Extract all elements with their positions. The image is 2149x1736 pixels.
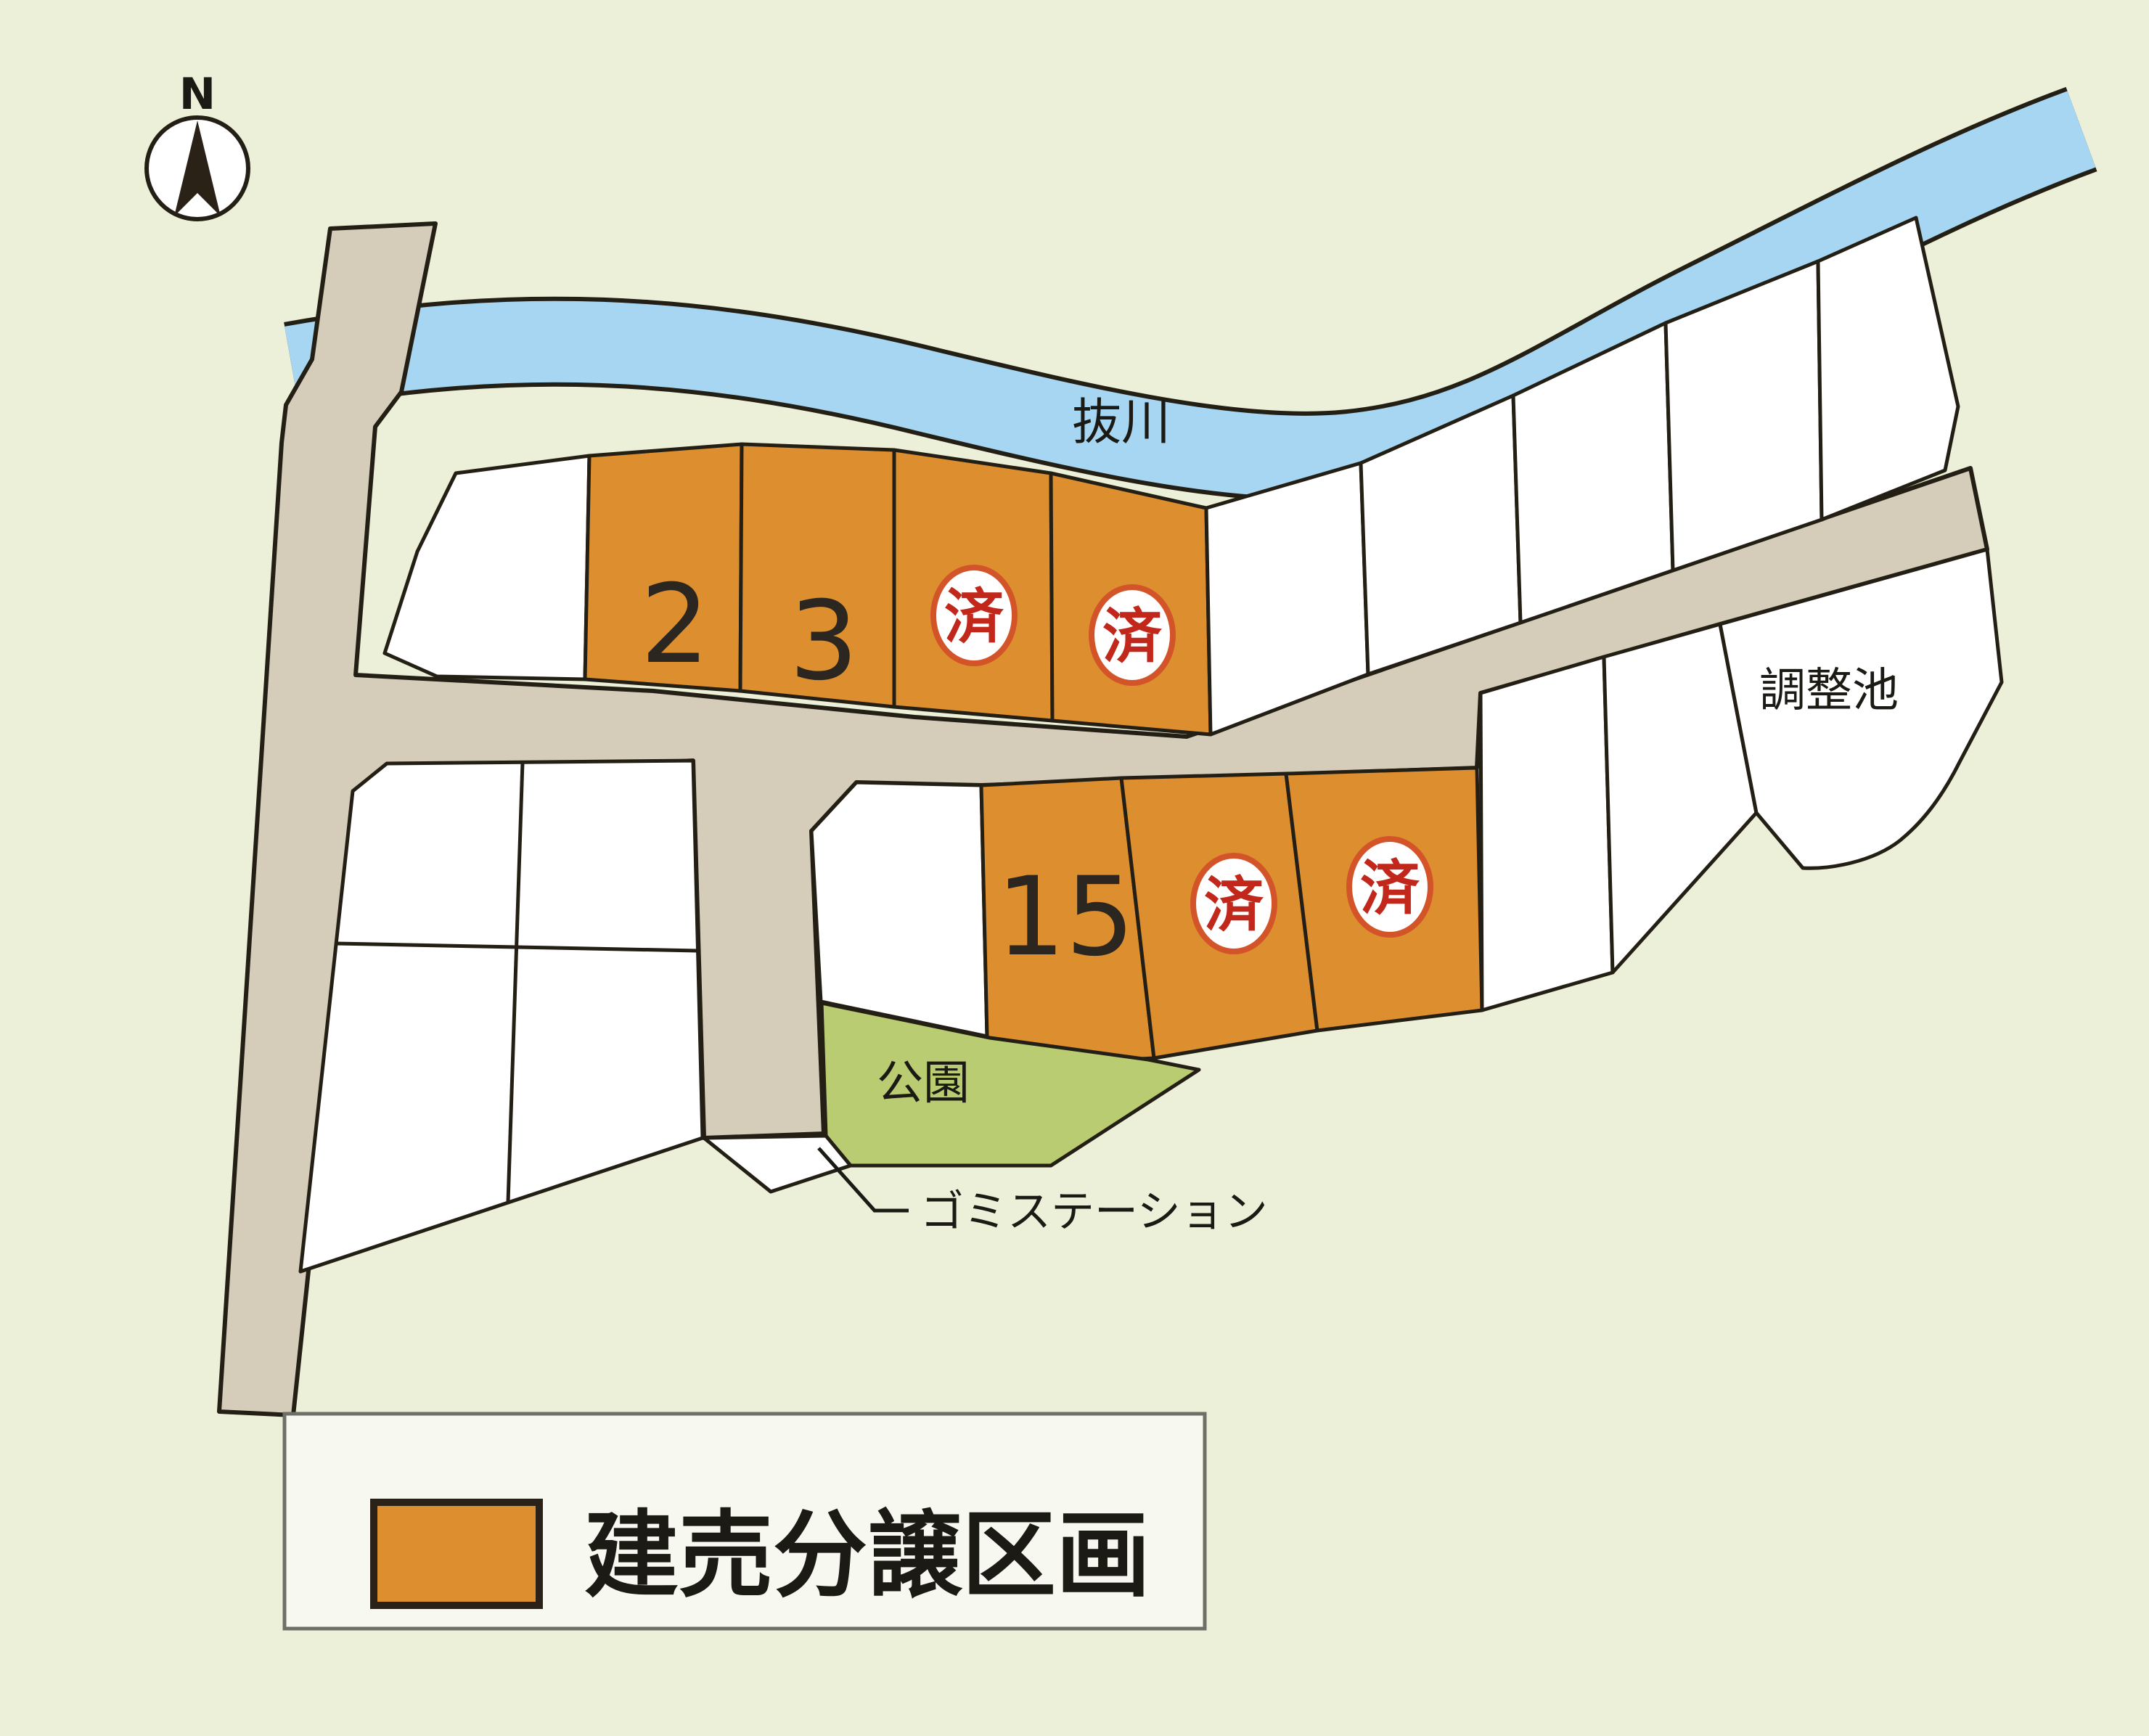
sold-stamp: 済	[1092, 587, 1173, 683]
legend-swatch	[374, 1502, 539, 1605]
sold-stamp: 済	[933, 568, 1015, 663]
sold-stamp-text: 済	[1360, 854, 1420, 923]
white-lot	[811, 782, 987, 1036]
legend: 建売分譲区画	[285, 1414, 1205, 1629]
legend-label: 建売分譲区画	[584, 1500, 1150, 1610]
site-plan-map: ゴミステーション 2 3 15 済 済 済 済 抜川 調整池 公園 N 建売分譲…	[0, 0, 2149, 1736]
lot-2-number: 2	[640, 562, 709, 688]
white-lot	[1481, 657, 1613, 1010]
lot-3-number: 3	[789, 578, 858, 705]
garbage-station-label: ゴミステーション	[920, 1187, 1268, 1237]
sold-stamp-text: 済	[1204, 871, 1264, 940]
sold-stamp-text: 済	[1102, 602, 1163, 671]
lot-15-number: 15	[996, 854, 1135, 980]
sold-stamp: 済	[1349, 839, 1430, 935]
sold-stamp-text: 済	[944, 583, 1004, 652]
park-label: 公園	[877, 1057, 970, 1110]
compass-n-label: N	[179, 69, 216, 120]
river-label: 抜川	[1072, 394, 1171, 451]
sold-stamp: 済	[1193, 856, 1274, 951]
pond-label: 調整池	[1759, 664, 1899, 718]
